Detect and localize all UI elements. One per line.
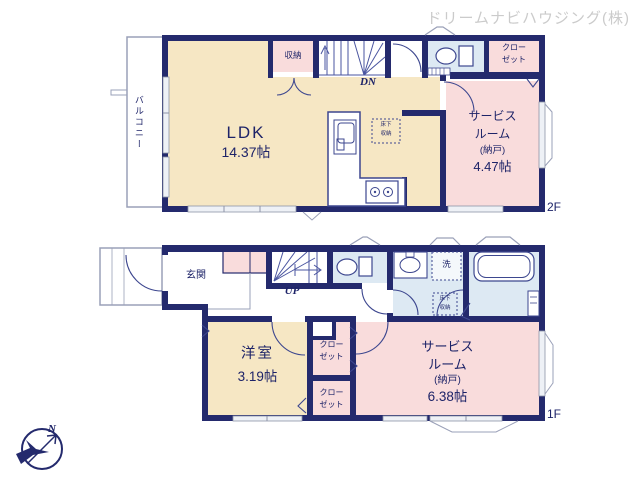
service-1f-size-label: 6.38帖 [356, 390, 539, 405]
service-2f-size-label: 4.47帖 [446, 160, 539, 174]
stairs-up-label: UP [272, 285, 312, 297]
service-1f-label-1: サービス [356, 340, 539, 354]
underfloor-1f-label-2: 収納 [433, 305, 457, 311]
floor-plan-canvas: ドリームナビハウジング(株) バルコニー LDK 14.37帖 収納 DN クロ… [0, 0, 640, 480]
stove-icon [366, 181, 398, 203]
bath-panel [528, 291, 539, 316]
porch-outline [100, 248, 162, 305]
ldk-name-label: LDK [171, 124, 321, 143]
compass-north-label: N [48, 423, 56, 435]
stairs-down [319, 41, 385, 75]
service-2f-label-3: (納戸) [446, 146, 539, 156]
closet-lower-label-1: クロー [313, 389, 350, 398]
closet-2f-label-1: クロー [489, 44, 539, 53]
bathtub-icon [474, 252, 534, 281]
laundry-label: 洗 [432, 260, 461, 269]
company-name: ドリームナビハウジング(株) [420, 11, 630, 28]
closet-lower-label-2: ゼット [313, 401, 350, 410]
closet-2f-label-2: ゼット [489, 56, 539, 65]
stairs-down-label: DN [348, 76, 388, 88]
floor1-label: 1F [547, 408, 561, 421]
service-1f-label-2: ルーム [356, 358, 539, 372]
underfloor-1f-label-1: 床下 [433, 296, 457, 302]
ldk-size-label: 14.37帖 [171, 145, 321, 160]
room-closet-lower [313, 381, 350, 415]
closet-upper-label-2: ゼット [313, 353, 350, 362]
underfloor-2f-label-2: 収納 [372, 131, 400, 137]
western-room-size-label: 3.19帖 [208, 370, 307, 385]
service-2f-label-1: サービス [446, 110, 539, 123]
service-2f-label-2: ルーム [446, 128, 539, 141]
floor2-label: 2F [547, 201, 561, 214]
service-1f-label-3: (納戸) [356, 375, 539, 386]
closet-notch [313, 322, 336, 340]
underfloor-2f-label-1: 床下 [372, 122, 400, 128]
storage-label: 収納 [272, 51, 314, 60]
entrance-label: 玄関 [176, 270, 216, 281]
room-service-2f [446, 81, 539, 206]
stairs-up [274, 252, 321, 283]
western-room-name-label: 洋室 [208, 347, 307, 363]
washbasin-icon [394, 252, 427, 278]
balcony-label: バルコニー [133, 95, 143, 150]
closet-upper-label-1: クロー [313, 341, 350, 350]
